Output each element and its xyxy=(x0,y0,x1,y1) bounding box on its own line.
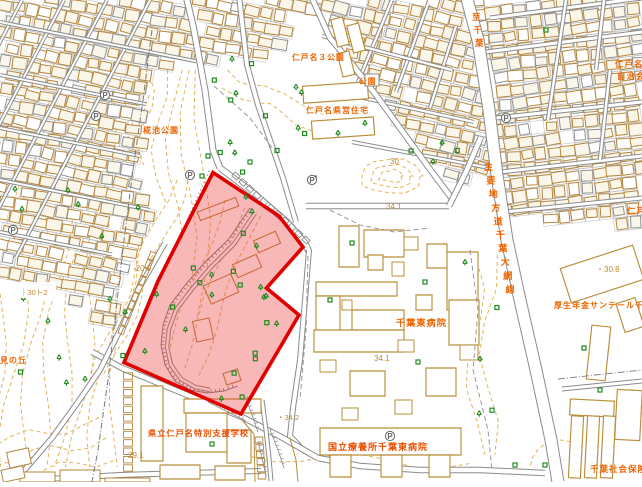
svg-text:仁戸名: 仁戸名 xyxy=(627,206,642,216)
svg-text:要: 要 xyxy=(486,176,496,186)
svg-text:仁戸名３公園: 仁戸名３公園 xyxy=(292,52,345,62)
svg-text:線: 線 xyxy=(506,283,516,294)
svg-text:-20.9: -20.9 xyxy=(133,264,152,273)
svg-text:P: P xyxy=(102,91,108,100)
svg-text:34.1: 34.1 xyxy=(374,354,390,363)
svg-text:｜30ト2: ｜30ト2 xyxy=(20,288,48,297)
svg-text:P: P xyxy=(503,114,509,123)
svg-text:・30.8: ・30.8 xyxy=(596,265,620,274)
svg-text:主: 主 xyxy=(484,161,494,172)
svg-text:P: P xyxy=(93,112,99,121)
svg-text:千葉東病院: 千葉東病院 xyxy=(396,317,447,328)
svg-text:千: 千 xyxy=(496,229,506,240)
svg-text:網: 網 xyxy=(503,270,513,281)
svg-text:大: 大 xyxy=(501,256,511,267)
svg-text:P: P xyxy=(187,171,193,180)
svg-text:葉: 葉 xyxy=(497,243,508,254)
svg-text:自治会: 自治会 xyxy=(617,71,642,81)
svg-text:P: P xyxy=(10,226,16,235)
svg-text:29.1: 29.1 xyxy=(128,451,144,460)
svg-text:葉: 葉 xyxy=(474,38,485,48)
svg-text:P: P xyxy=(309,176,315,185)
svg-text:仁戸名県営住宅: 仁戸名県営住宅 xyxy=(306,105,369,115)
svg-text:30: 30 xyxy=(390,157,399,166)
svg-text:見の丘: 見の丘 xyxy=(0,355,27,365)
svg-text:地: 地 xyxy=(489,188,499,199)
svg-text:千葉社会保険: 千葉社会保険 xyxy=(590,464,642,474)
svg-text:方: 方 xyxy=(491,202,501,213)
svg-text:椛池公園: 椛池公園 xyxy=(143,125,179,135)
svg-text:公園: 公園 xyxy=(359,77,377,86)
svg-text:県立仁戸名特別支援学校: 県立仁戸名特別支援学校 xyxy=(148,428,249,438)
svg-text:国立療養所千葉東病院: 国立療養所千葉東病院 xyxy=(328,441,428,452)
svg-text:千: 千 xyxy=(474,25,484,35)
svg-text:至: 至 xyxy=(472,12,482,22)
svg-text:道: 道 xyxy=(494,215,504,226)
svg-text:・34.2: ・34.2 xyxy=(277,413,299,422)
svg-text:34.1: 34.1 xyxy=(386,202,402,211)
svg-text:P: P xyxy=(387,432,393,441)
svg-text:厚生年金サンテール千葉: 厚生年金サンテール千葉 xyxy=(554,300,642,310)
svg-text:仁戸名: 仁戸名 xyxy=(615,59,642,69)
